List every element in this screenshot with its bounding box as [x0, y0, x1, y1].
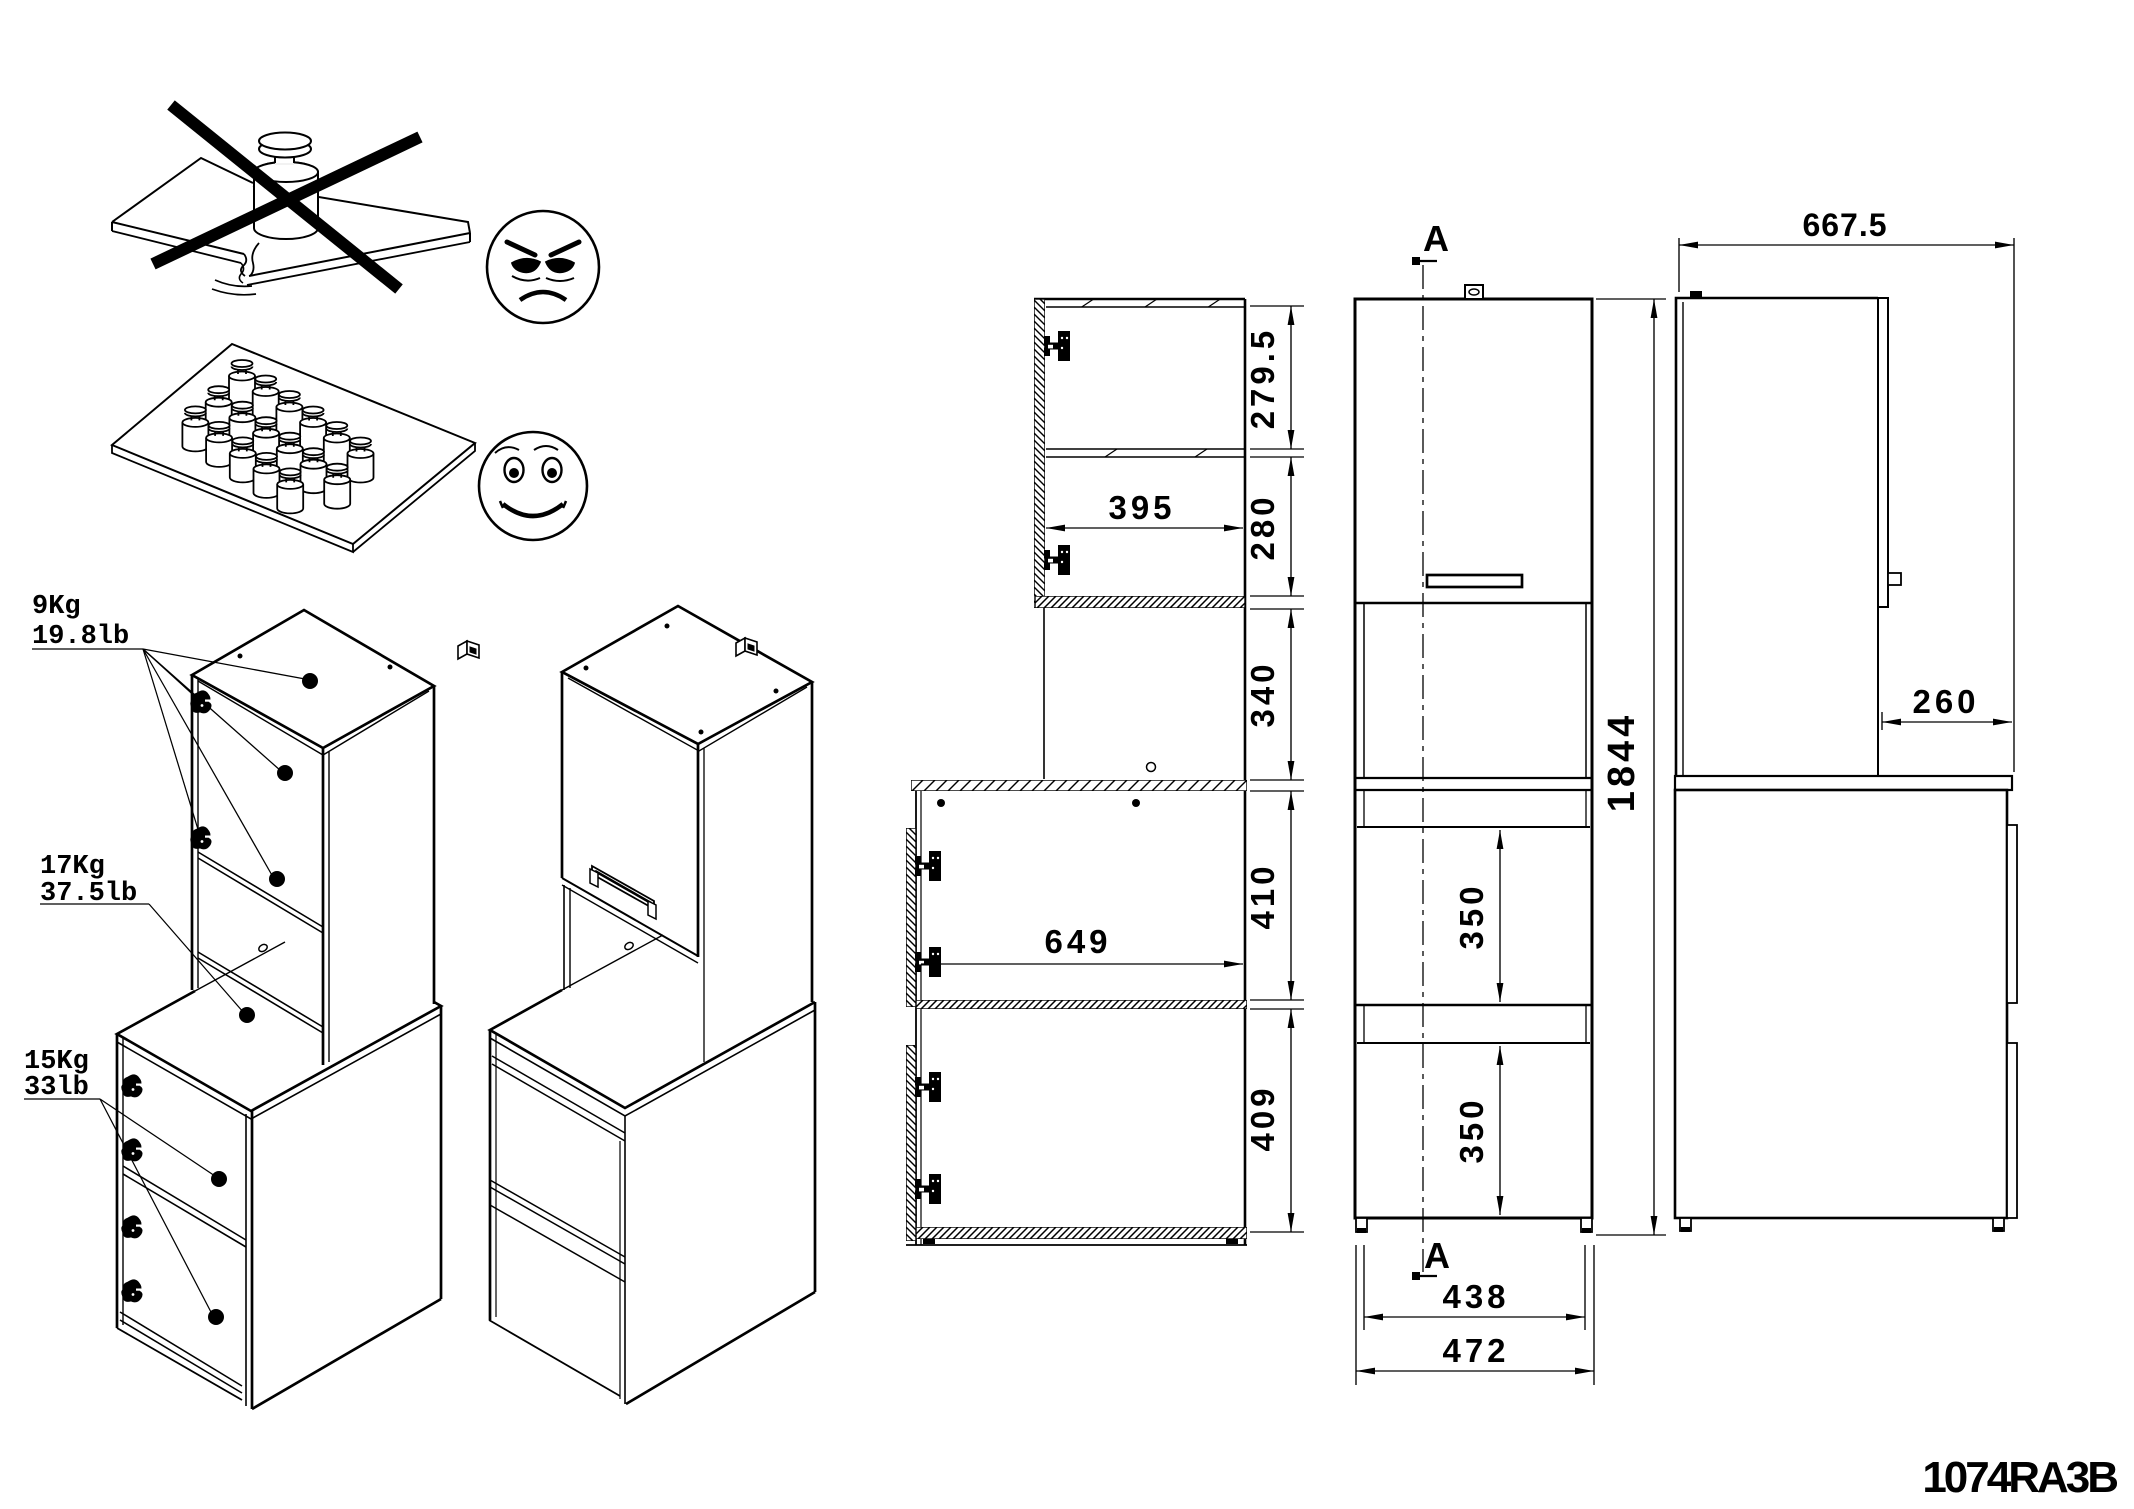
svg-text:649: 649: [1044, 923, 1111, 960]
svg-text:1844: 1844: [1601, 712, 1643, 813]
svg-text:350: 350: [1453, 882, 1490, 949]
svg-text:9Kg: 9Kg: [32, 592, 81, 622]
svg-text:409: 409: [1244, 1084, 1281, 1151]
svg-text:279.5: 279.5: [1244, 327, 1281, 430]
svg-text:1074RA3B: 1074RA3B: [1922, 1453, 2117, 1502]
svg-text:472: 472: [1442, 1332, 1509, 1369]
svg-text:260: 260: [1912, 683, 1979, 720]
svg-text:667.5: 667.5: [1802, 207, 1887, 243]
svg-text:17Kg: 17Kg: [40, 852, 105, 882]
svg-text:280: 280: [1244, 493, 1281, 560]
svg-text:A: A: [1424, 1235, 1450, 1276]
svg-text:410: 410: [1244, 862, 1281, 929]
svg-text:395: 395: [1108, 489, 1175, 526]
svg-text:438: 438: [1442, 1278, 1509, 1315]
svg-text:A: A: [1423, 218, 1449, 259]
svg-text:19.8lb: 19.8lb: [32, 622, 129, 652]
svg-text:340: 340: [1244, 660, 1281, 727]
svg-text:350: 350: [1453, 1096, 1490, 1163]
